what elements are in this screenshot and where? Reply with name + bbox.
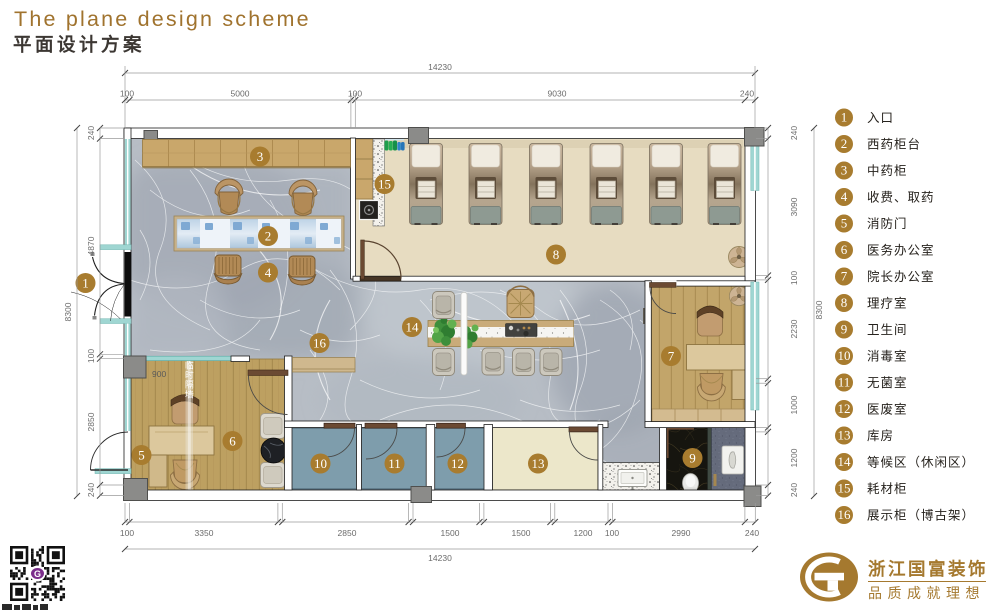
svg-text:临时隔墙: 临时隔墙 <box>185 360 194 400</box>
svg-text:100: 100 <box>120 89 134 99</box>
svg-text:品质成就理想: 品质成就理想 <box>868 585 985 601</box>
svg-text:100: 100 <box>86 349 96 363</box>
svg-text:4870: 4870 <box>86 236 96 255</box>
svg-text:4: 4 <box>841 189 848 204</box>
svg-text:2: 2 <box>265 229 272 244</box>
svg-text:The plane design scheme: The plane design scheme <box>14 7 311 31</box>
svg-text:8: 8 <box>553 247 560 262</box>
svg-text:15: 15 <box>378 177 391 192</box>
svg-text:5000: 5000 <box>231 89 250 99</box>
svg-text:100: 100 <box>120 528 134 538</box>
svg-text:等候区（休闲区）: 等候区（休闲区） <box>867 455 975 470</box>
svg-text:15: 15 <box>838 481 851 496</box>
svg-text:100: 100 <box>605 528 619 538</box>
svg-text:6: 6 <box>841 242 848 257</box>
svg-text:100: 100 <box>348 89 362 99</box>
svg-text:240: 240 <box>86 483 96 497</box>
svg-text:9: 9 <box>689 451 696 466</box>
svg-text:13: 13 <box>838 428 851 443</box>
svg-text:展示柜（博古架）: 展示柜（博古架） <box>867 508 975 523</box>
svg-text:耗材柜: 耗材柜 <box>867 482 908 496</box>
svg-text:2: 2 <box>841 136 848 151</box>
svg-text:14: 14 <box>838 454 852 469</box>
svg-text:100: 100 <box>789 271 799 285</box>
svg-text:3090: 3090 <box>789 197 799 216</box>
svg-text:2230: 2230 <box>789 319 799 338</box>
svg-text:消毒室: 消毒室 <box>867 349 908 364</box>
svg-text:无菌室: 无菌室 <box>867 375 908 390</box>
svg-text:13: 13 <box>532 456 545 471</box>
svg-text:3: 3 <box>841 163 848 178</box>
svg-text:8300: 8300 <box>63 302 73 321</box>
svg-text:医务办公室: 医务办公室 <box>867 243 935 258</box>
svg-text:6: 6 <box>229 434 236 449</box>
svg-text:消防门: 消防门 <box>867 216 908 231</box>
svg-text:5: 5 <box>138 448 145 463</box>
svg-text:5: 5 <box>841 216 848 231</box>
svg-text:医废室: 医废室 <box>867 402 908 417</box>
svg-text:1500: 1500 <box>441 528 460 538</box>
svg-text:240: 240 <box>745 528 759 538</box>
svg-text:11: 11 <box>388 456 401 471</box>
svg-text:入口: 入口 <box>867 111 894 125</box>
svg-text:1: 1 <box>841 110 848 125</box>
svg-text:院长办公室: 院长办公室 <box>867 269 935 284</box>
svg-text:浙江国富装饰: 浙江国富装饰 <box>868 559 988 579</box>
svg-text:1000: 1000 <box>789 395 799 414</box>
svg-text:240: 240 <box>789 126 799 140</box>
svg-text:7: 7 <box>841 269 848 284</box>
svg-text:10: 10 <box>838 348 851 363</box>
svg-text:10: 10 <box>314 456 327 471</box>
svg-text:平面设计方案: 平面设计方案 <box>13 34 145 55</box>
svg-text:收费、取药: 收费、取药 <box>867 191 935 205</box>
svg-text:库房: 库房 <box>867 428 894 443</box>
svg-text:卫生间: 卫生间 <box>867 323 908 337</box>
svg-text:14230: 14230 <box>428 553 452 563</box>
svg-text:240: 240 <box>86 126 96 140</box>
svg-text:1200: 1200 <box>574 528 593 538</box>
svg-text:西药柜台: 西药柜台 <box>867 137 921 152</box>
svg-text:2850: 2850 <box>338 528 357 538</box>
svg-text:1: 1 <box>82 276 89 291</box>
svg-text:16: 16 <box>313 336 327 351</box>
svg-text:G: G <box>34 569 41 579</box>
svg-text:14: 14 <box>406 320 420 335</box>
svg-text:1500: 1500 <box>512 528 531 538</box>
svg-text:2990: 2990 <box>672 528 691 538</box>
svg-text:3350: 3350 <box>195 528 214 538</box>
svg-text:8: 8 <box>841 295 848 310</box>
svg-text:12: 12 <box>451 456 464 471</box>
svg-text:7: 7 <box>668 349 675 364</box>
svg-text:1200: 1200 <box>789 448 799 467</box>
svg-text:9030: 9030 <box>548 89 567 99</box>
svg-text:8300: 8300 <box>814 300 824 319</box>
svg-text:14230: 14230 <box>428 62 452 72</box>
svg-text:2850: 2850 <box>86 412 96 431</box>
svg-text:4: 4 <box>265 265 272 280</box>
svg-text:12: 12 <box>838 401 851 416</box>
svg-text:16: 16 <box>838 507 852 522</box>
svg-text:900: 900 <box>152 369 166 379</box>
svg-text:理疗室: 理疗室 <box>867 296 908 311</box>
svg-text:中药柜: 中药柜 <box>867 163 908 178</box>
svg-text:240: 240 <box>789 483 799 497</box>
svg-text:11: 11 <box>838 375 851 390</box>
svg-text:240: 240 <box>740 89 754 99</box>
svg-text:9: 9 <box>841 322 848 337</box>
svg-text:3: 3 <box>257 149 264 164</box>
